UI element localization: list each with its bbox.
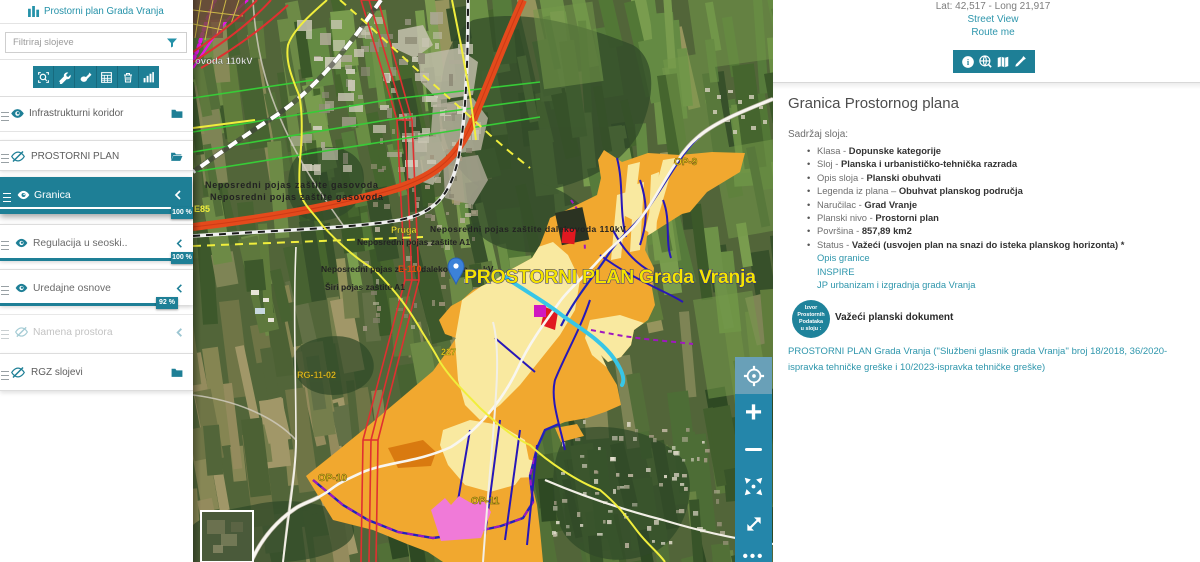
svg-text:Pruga: Pruga (391, 225, 418, 235)
svg-text:PROSTORNI PLAN Grada Vranja: PROSTORNI PLAN Grada Vranja (464, 266, 756, 288)
svg-text:OP-11: OP-11 (471, 496, 500, 507)
svg-text:Neposredni pojas za: Neposredni pojas za (321, 264, 404, 274)
svg-text:Širi pojas zaštite A1: Širi pojas zaštite A1 (325, 281, 405, 292)
svg-text:E-110: E-110 (398, 264, 422, 274)
svg-text:ovoda 110kV: ovoda 110kV (195, 56, 253, 67)
svg-text:RG-11-02: RG-11-02 (297, 370, 336, 380)
svg-text:OP-10: OP-10 (318, 473, 347, 484)
svg-text:Neposredni pojas zaštite dalek: Neposredni pojas zaštite dalekovoda 110k… (430, 224, 626, 234)
svg-text:Neposredni pojas zaštite gasov: Neposredni pojas zaštite gasovoda (210, 192, 384, 202)
svg-text:227: 227 (441, 347, 456, 357)
svg-text:Neposredni pojas zaštite A1: Neposredni pojas zaštite A1 (357, 237, 470, 247)
svg-text:Neposredni pojas zaštite gasov: Neposredni pojas zaštite gasovoda (205, 180, 379, 190)
svg-text:OP-9: OP-9 (674, 157, 698, 168)
